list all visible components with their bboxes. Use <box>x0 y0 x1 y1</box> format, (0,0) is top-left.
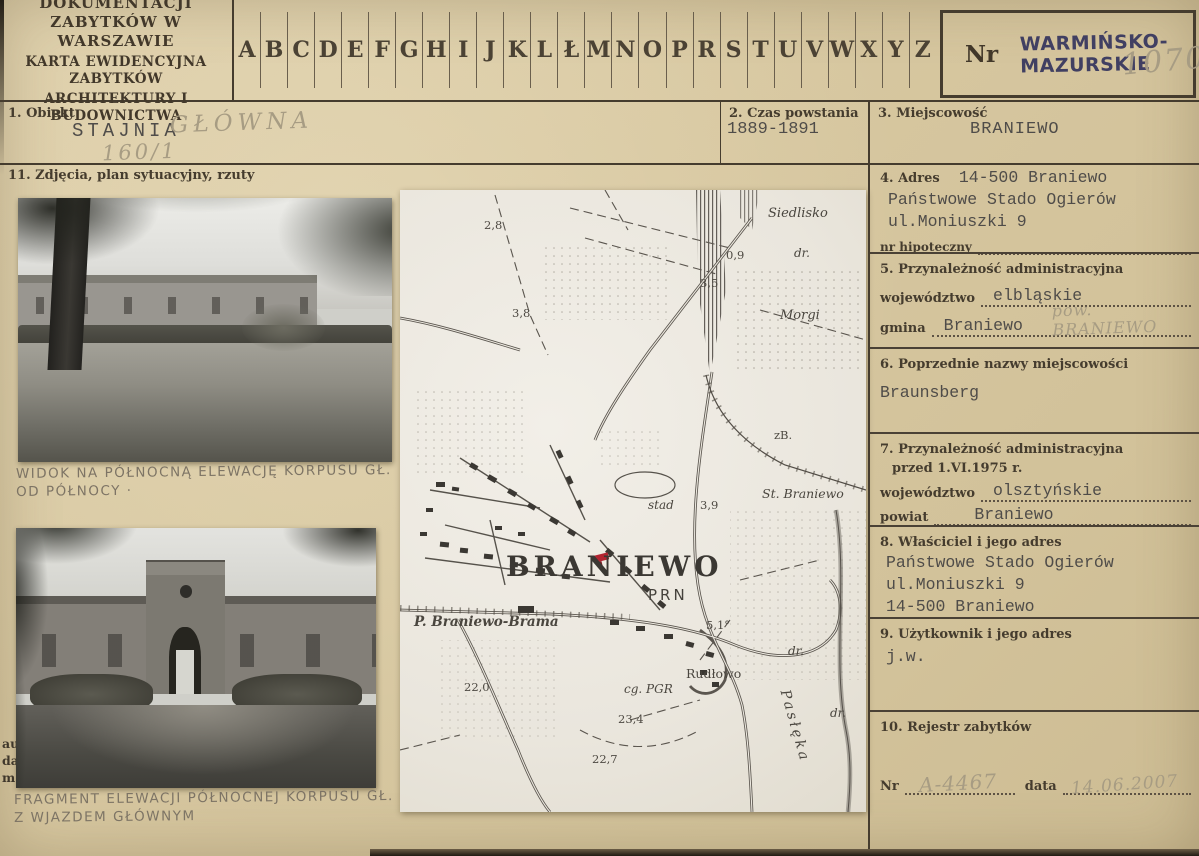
right-column: 4. Adres 14-500 Braniewo Państwowe Stado… <box>868 163 1199 849</box>
index-letter: B <box>261 12 288 88</box>
institution-name: OŚRODEK DOKUMENTACJI <box>0 0 232 13</box>
rejestr-nr-value: A-4467 <box>918 769 997 797</box>
construction-date-value: 1889-1891 <box>727 120 819 139</box>
gmina-line: Braniewo pow. BRANIEWO <box>932 315 1191 337</box>
nr-label: Nr <box>965 41 998 68</box>
map-elev-38: 3,8 <box>512 306 530 320</box>
photo2-conifer-branches <box>16 528 185 788</box>
field-7-label-1: 7. Przynależność administracyjna <box>880 442 1123 457</box>
user-value: j.w. <box>886 646 1191 668</box>
index-letter: F <box>369 12 396 88</box>
photo1-caption: WIDOK NA PÓŁNOCNĄ ELEWACJĘ KORPUSU GŁ. O… <box>16 461 392 501</box>
map-label-dr-top: dr. <box>794 246 810 260</box>
alphabet-index-strip: ABCDEFGHIJKLŁMNOPRSTUVWXYZ <box>234 0 936 100</box>
rejestr-data-line: 14.06.2007 <box>1063 773 1191 795</box>
index-letter: U <box>775 12 802 88</box>
index-letter: Z <box>910 12 936 88</box>
photo1-tree-canopy <box>18 198 392 296</box>
object-row: 1. Obiekt STAJNIA GŁÓWNA 160/1 2. Czas p… <box>0 102 1199 165</box>
map-label-braniewo: BRANIEWO <box>506 550 723 583</box>
field-1-label: 1. Obiekt <box>8 106 75 121</box>
powiat-line: Braniewo <box>934 504 1191 526</box>
map-label-prn: PRN <box>648 586 688 604</box>
index-letter: T <box>748 12 775 88</box>
situational-map: Siedlisko dr. 2,8 0,9 3,5 3,8 Morgi zB. … <box>400 190 866 812</box>
map-label-cg-pgr: cg. PGR <box>624 682 673 696</box>
map-label-dr-low: dr. <box>830 706 846 720</box>
margin-line: m <box>2 769 17 786</box>
owner-line2: ul.Moniuszki 9 <box>886 574 1191 596</box>
handwritten-card-number: 1070 <box>1121 40 1199 82</box>
institution-name-2: ZABYTKÓW W WARSZAWIE <box>0 13 232 51</box>
index-letter: E <box>342 12 369 88</box>
index-letter: Y <box>883 12 910 88</box>
index-letter: P <box>667 12 694 88</box>
heritage-record-card: OŚRODEK DOKUMENTACJI ZABYTKÓW W WARSZAWI… <box>0 0 1199 856</box>
index-letter: X <box>856 12 883 88</box>
field-6-label: 6. Poprzednie nazwy miejscowości <box>880 357 1128 372</box>
owner-line3: 14-500 Braniewo <box>886 596 1191 618</box>
owner-line1: Państwowe Stado Ogierów <box>886 552 1191 574</box>
index-letter: R <box>694 12 721 88</box>
wojewodztwo-label: województwo <box>880 291 975 307</box>
address-line3: ul.Moniuszki 9 <box>888 211 1191 233</box>
field-10-label: 10. Rejestr zabytków <box>880 720 1031 735</box>
former-name-value: Braunsberg <box>880 382 1191 404</box>
field-6-poprzednie-nazwy: 6. Poprzednie nazwy miejscowości Braunsb… <box>870 347 1199 432</box>
rejestr-nr-label: Nr <box>880 779 899 795</box>
gmina-label: gmina <box>880 321 926 337</box>
photo2-branch-right <box>214 528 376 624</box>
object-handwritten-name: GŁÓWNA <box>170 108 314 139</box>
scan-edge-bottom <box>370 849 1199 856</box>
wojewodztwo-1975-label: województwo <box>880 486 975 502</box>
index-letter: A <box>234 12 261 88</box>
index-letter: N <box>612 12 639 88</box>
field-7-przynaleznosc-1975: 7. Przynależność administracyjna przed 1… <box>870 432 1199 525</box>
gmina-handwritten: pow. BRANIEWO <box>1051 297 1192 340</box>
rejestr-data-label: data <box>1025 779 1057 795</box>
wojewodztwo-1975-value: olsztyńskie <box>993 480 1102 502</box>
map-label-dr-right: dr. <box>788 644 804 658</box>
field-11-label: 11. Zdjęcia, plan sytuacyjny, rzuty <box>8 168 254 183</box>
rejestr-data-value: 14.06.2007 <box>1070 771 1178 798</box>
index-letter: K <box>504 12 531 88</box>
photo-north-elevation <box>18 198 392 462</box>
field-9-uzytkownik: 9. Użytkownik i jego adres j.w. <box>870 617 1199 710</box>
field-8-label: 8. Właściciel i jego adres <box>880 535 1062 550</box>
map-elev-28: 2,8 <box>484 218 502 232</box>
map-label-rudlowo: Rudłowo <box>686 666 741 681</box>
map-elev-09: 0,9 <box>726 248 744 262</box>
index-letter: G <box>396 12 423 88</box>
institution-box: OŚRODEK DOKUMENTACJI ZABYTKÓW W WARSZAWI… <box>0 0 234 100</box>
index-letter: O <box>639 12 666 88</box>
map-elev-35: 3,5 <box>700 276 718 290</box>
index-letter: S <box>721 12 748 88</box>
field-4-label: 4. Adres <box>880 171 940 186</box>
index-letter: I <box>450 12 477 88</box>
photo-margin-text: audam <box>2 735 17 786</box>
index-letter: C <box>288 12 315 88</box>
index-letter: D <box>315 12 342 88</box>
gmina-value: Braniewo <box>944 315 1023 337</box>
locality-value: BRANIEWO <box>970 120 1060 139</box>
photo1-bush <box>242 304 324 352</box>
index-letter: Ł <box>558 12 585 88</box>
field-7-label-2: przed 1.VI.1975 r. <box>892 461 1022 476</box>
map-label-st-braniewo: St. Braniewo <box>762 486 844 501</box>
map-elev-39: 3,9 <box>700 498 718 512</box>
photo-gate-facade <box>16 528 376 788</box>
index-letter: J <box>477 12 504 88</box>
map-elev-227: 22,7 <box>592 752 618 766</box>
address-line1: 14-500 Braniewo <box>959 168 1108 187</box>
wojewodztwo-1975-line: olsztyńskie <box>981 480 1191 502</box>
map-label-siedlisko: Siedlisko <box>768 206 828 221</box>
field-1-obiekt: 1. Obiekt STAJNIA GŁÓWNA 160/1 <box>0 102 720 163</box>
field-5-przynaleznosc: 5. Przynależność administracyjna wojewód… <box>870 252 1199 347</box>
index-letter: W <box>829 12 856 88</box>
card-type: KARTA EWIDENCYJNA ZABYTKÓW <box>0 54 232 88</box>
index-letter: V <box>802 12 829 88</box>
powiat-value: Braniewo <box>974 504 1053 526</box>
field-2-czas-powstania: 2. Czas powstania 1889-1891 <box>720 102 869 163</box>
map-label-morgi: Morgi <box>780 308 820 323</box>
field-4-adres: 4. Adres 14-500 Braniewo Państwowe Stado… <box>870 163 1199 252</box>
map-label-braniewo-brama: P. Braniewo-Brama <box>414 614 559 630</box>
map-label-stad: stad <box>648 498 674 512</box>
field-2-label: 2. Czas powstania <box>729 106 859 121</box>
field-8-wlasciciel: 8. Właściciel i jego adres Państwowe Sta… <box>870 525 1199 617</box>
field-3-miejscowosc: 3. Miejscowość BRANIEWO <box>868 102 1199 163</box>
margin-line: da <box>2 752 17 769</box>
object-handwritten-number: 160/1 <box>102 139 178 166</box>
index-letter: L <box>531 12 558 88</box>
address-line2: Państwowe Stado Ogierów <box>888 189 1191 211</box>
field-5-label: 5. Przynależność administracyjna <box>880 262 1123 277</box>
index-letter: H <box>423 12 450 88</box>
photo2-caption: FRAGMENT ELEWACJI PÓŁNOCNEJ KORPUSU GŁ. … <box>14 787 394 827</box>
map-elev-220: 22,0 <box>464 680 490 694</box>
map-elev-234: 23,4 <box>618 712 644 726</box>
map-label-zb: zB. <box>774 428 792 442</box>
field-3-label: 3. Miejscowość <box>878 106 987 121</box>
map-elev-51: 5,1° <box>706 618 730 632</box>
powiat-label: powiat <box>880 510 928 526</box>
field-9-label: 9. Użytkownik i jego adres <box>880 627 1072 642</box>
card-header: OŚRODEK DOKUMENTACJI ZABYTKÓW W WARSZAWI… <box>0 0 1199 102</box>
field-10-rejestr: 10. Rejestr zabytków Nr A-4467 data 14.0… <box>870 710 1199 849</box>
index-letter: M <box>585 12 612 88</box>
rejestr-nr-line: A-4467 <box>905 773 1015 795</box>
margin-line: au <box>2 735 17 752</box>
